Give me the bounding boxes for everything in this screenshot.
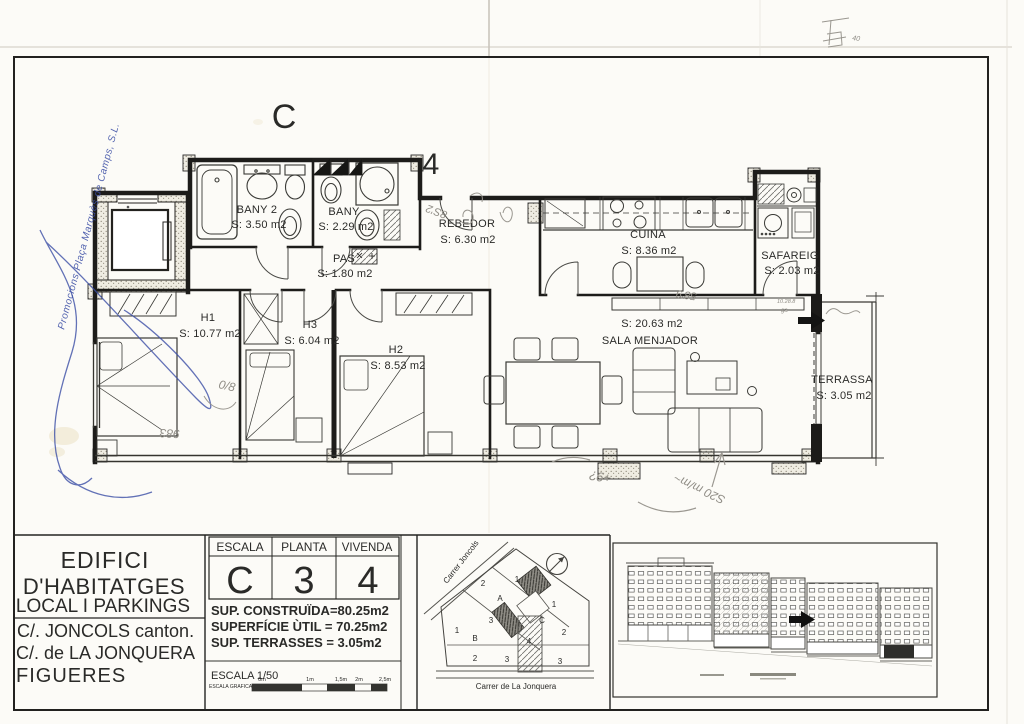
address-line-1: C/. JONCOLS canton.	[17, 621, 194, 641]
note-bottom-1: +9?	[588, 468, 613, 486]
room-area-rebedor: S: 6.30 m2	[440, 234, 495, 246]
plot-label: C	[539, 616, 545, 625]
room-area-safareig: S: 2.03 m2	[764, 265, 819, 277]
room-area-bany: S: 2.29 m2	[318, 221, 373, 233]
room-label-sala: SALA MENJADOR	[602, 335, 698, 347]
room-area-sala: S: 20.63 m2	[621, 318, 683, 330]
scale-bar-caption: ESCALA GRAFICA	[209, 684, 253, 690]
plot-label: 3	[489, 616, 494, 625]
address-line-3: FIGUERES	[16, 665, 126, 687]
note-h1-bottom: 983	[159, 426, 180, 441]
room-label-pas: PAS	[333, 253, 355, 265]
street-jonquera: Carrer de La Jonquera	[476, 682, 557, 691]
plot-label: A	[497, 594, 503, 603]
address-line-2: C/. de LA JONQUERA	[16, 643, 195, 663]
plot-label: 1	[552, 600, 557, 609]
plan-info-table: ESCALA PLANTA VIVENDA C 3 4	[209, 537, 399, 602]
room-area-bany2: S: 3.50 m2	[231, 219, 286, 231]
plot-label: 4	[527, 637, 532, 646]
vivenda-value: 4	[357, 560, 378, 602]
scale-tick-1: 1m	[306, 677, 314, 683]
planta-value: 3	[293, 560, 314, 602]
plot-label: 1	[515, 575, 520, 584]
note-terrace-1: 10.28.8	[777, 299, 796, 305]
block-letter: C	[272, 98, 297, 136]
room-area-h2: S: 8.53 m2	[370, 360, 425, 372]
corner-doodle-text: 40	[852, 35, 861, 43]
room-area-h3: S: 6.04 m2	[284, 335, 339, 347]
sup-construida: SUP. CONSTRUÏDA=80.25m2	[211, 603, 389, 618]
building-title-3: LOCAL I PARKINGS	[16, 596, 190, 617]
plot-label: B	[472, 634, 477, 643]
scale-tick-0: 0m	[258, 677, 266, 683]
note-terrace-2: ga	[781, 308, 788, 314]
room-area-cuina: S: 8.36 m2	[621, 245, 676, 257]
sup-terrasses: SUP. TERRASSES = 3.05m2	[211, 635, 382, 650]
escala-label: ESCALA	[216, 540, 263, 554]
scanned-plan-sheet: C 4 BANY 2 S: 3.50 m2 BANY S: 2.29 m2 PA…	[0, 0, 1024, 724]
room-area-pas: S: 1.80 m2	[317, 268, 372, 280]
vivenda-label: VIVENDA	[342, 542, 393, 554]
scale-text: ESCALA 1/50	[211, 670, 278, 682]
room-label-bany: BANY	[328, 206, 360, 218]
room-area-h1: S: 10.77 m2	[179, 328, 241, 340]
room-label-h3: H3	[303, 319, 318, 331]
floorplan-drawing: C 4 BANY 2 S: 3.50 m2 BANY S: 2.29 m2 PA…	[0, 0, 1024, 724]
planta-label: PLANTA	[281, 540, 327, 554]
plot-label: 3	[505, 655, 510, 664]
room-label-safareig: SAFAREIG	[761, 250, 818, 262]
room-label-terrassa: TERRASSA	[811, 374, 873, 386]
scale-tick-4: 2,5m	[379, 677, 392, 683]
scale-tick-3: 2m	[355, 677, 363, 683]
sup-util: SUPERFÍCIE ÙTIL = 70.25m2	[211, 619, 387, 634]
plot-label: 2	[562, 628, 567, 637]
room-label-cuina: CUINA	[630, 229, 666, 241]
escala-value: C	[226, 560, 253, 602]
plot-label: 3	[558, 657, 563, 666]
room-label-h2: H2	[389, 344, 404, 356]
room-area-terrassa: S: 3.05 m2	[816, 390, 871, 402]
room-label-h1: H1	[201, 312, 216, 324]
plot-label: 1	[455, 626, 460, 635]
scale-tick-2: 1,5m	[335, 677, 348, 683]
unit-number: 4	[423, 148, 440, 181]
room-label-bany2: BANY 2	[237, 204, 278, 216]
plot-label: 2	[481, 579, 486, 588]
building-title-1: EDIFICI	[61, 547, 150, 573]
plot-label: 2	[473, 654, 478, 663]
